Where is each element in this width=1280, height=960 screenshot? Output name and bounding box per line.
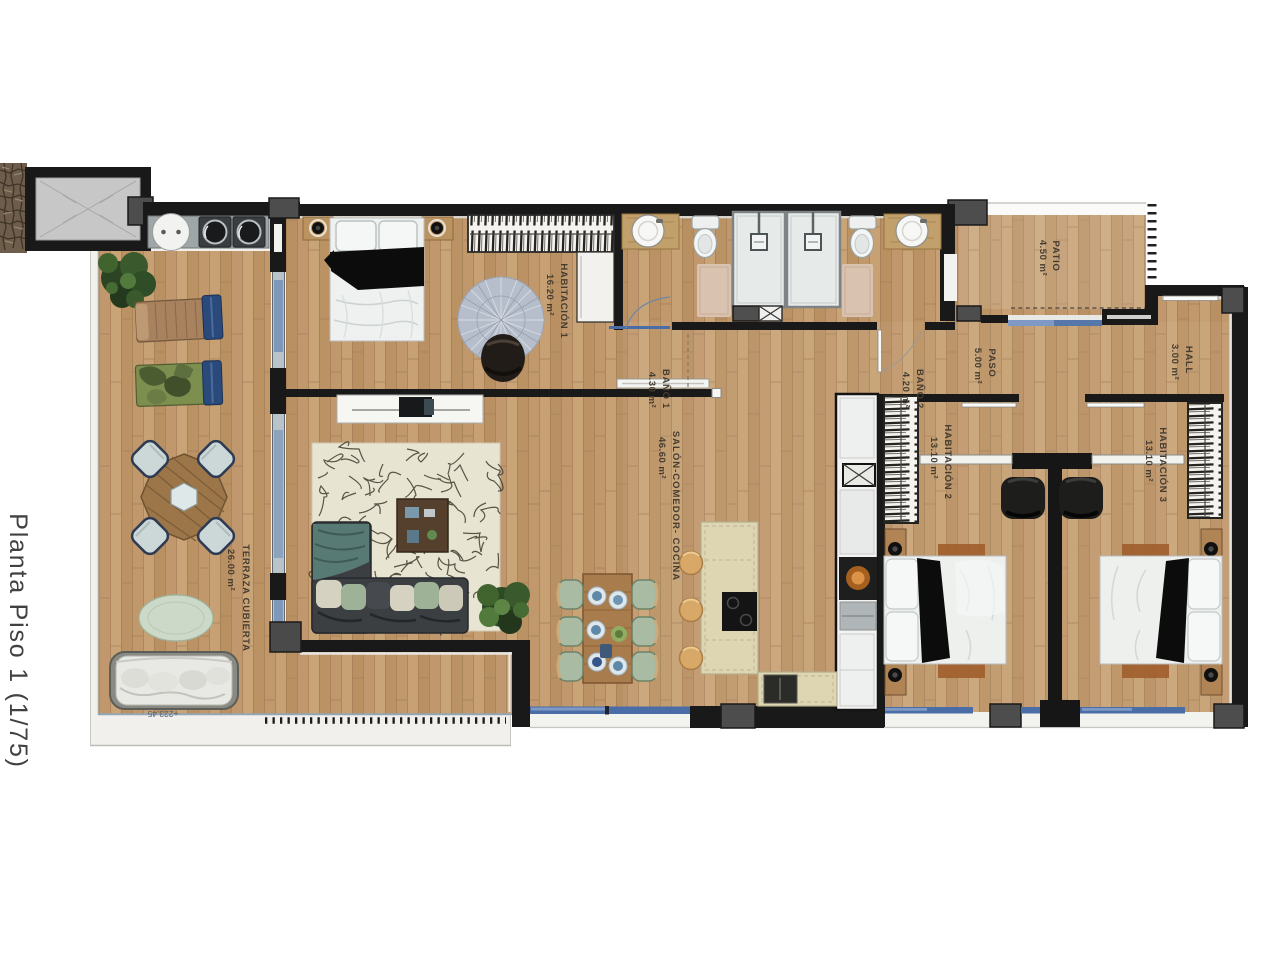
svg-text:46.60 m²: 46.60 m² [656,437,667,479]
svg-text:HABITACIÓN 3: HABITACIÓN 3 [1157,427,1169,502]
svg-text:16.20 m²: 16.20 m² [544,274,555,316]
svg-text:BAÑO 1: BAÑO 1 [660,369,671,409]
svg-text:PATIO: PATIO [1050,240,1061,271]
svg-text:HABITACIÓN 2: HABITACIÓN 2 [942,424,954,499]
svg-text:Planta Piso 1 (1/75): Planta Piso 1 (1/75) [4,513,32,769]
svg-text:13.10 m²: 13.10 m² [928,437,939,479]
svg-text:5.00 m²: 5.00 m² [972,348,983,384]
svg-text:4.30 m²: 4.30 m² [646,372,657,408]
svg-text:BAÑO 2: BAÑO 2 [914,369,925,409]
svg-text:4.20 m²: 4.20 m² [900,372,911,408]
svg-text:TERRAZA CUBIERTA: TERRAZA CUBIERTA [240,544,251,651]
svg-text:HABITACIÓN 1: HABITACIÓN 1 [558,263,570,338]
svg-text:4.50 m²: 4.50 m² [1037,240,1048,276]
svg-text:SALÓN-COMEDOR- COCINA: SALÓN-COMEDOR- COCINA [670,431,682,581]
svg-text:13.10 m²: 13.10 m² [1143,440,1154,482]
svg-text:PASO: PASO [986,348,997,377]
svg-text:+223.45: +223.45 [147,709,178,719]
svg-text:3.00 m²: 3.00 m² [1169,344,1180,380]
svg-text:26.00 m²: 26.00 m² [225,549,236,591]
svg-text:HALL: HALL [1183,346,1194,374]
